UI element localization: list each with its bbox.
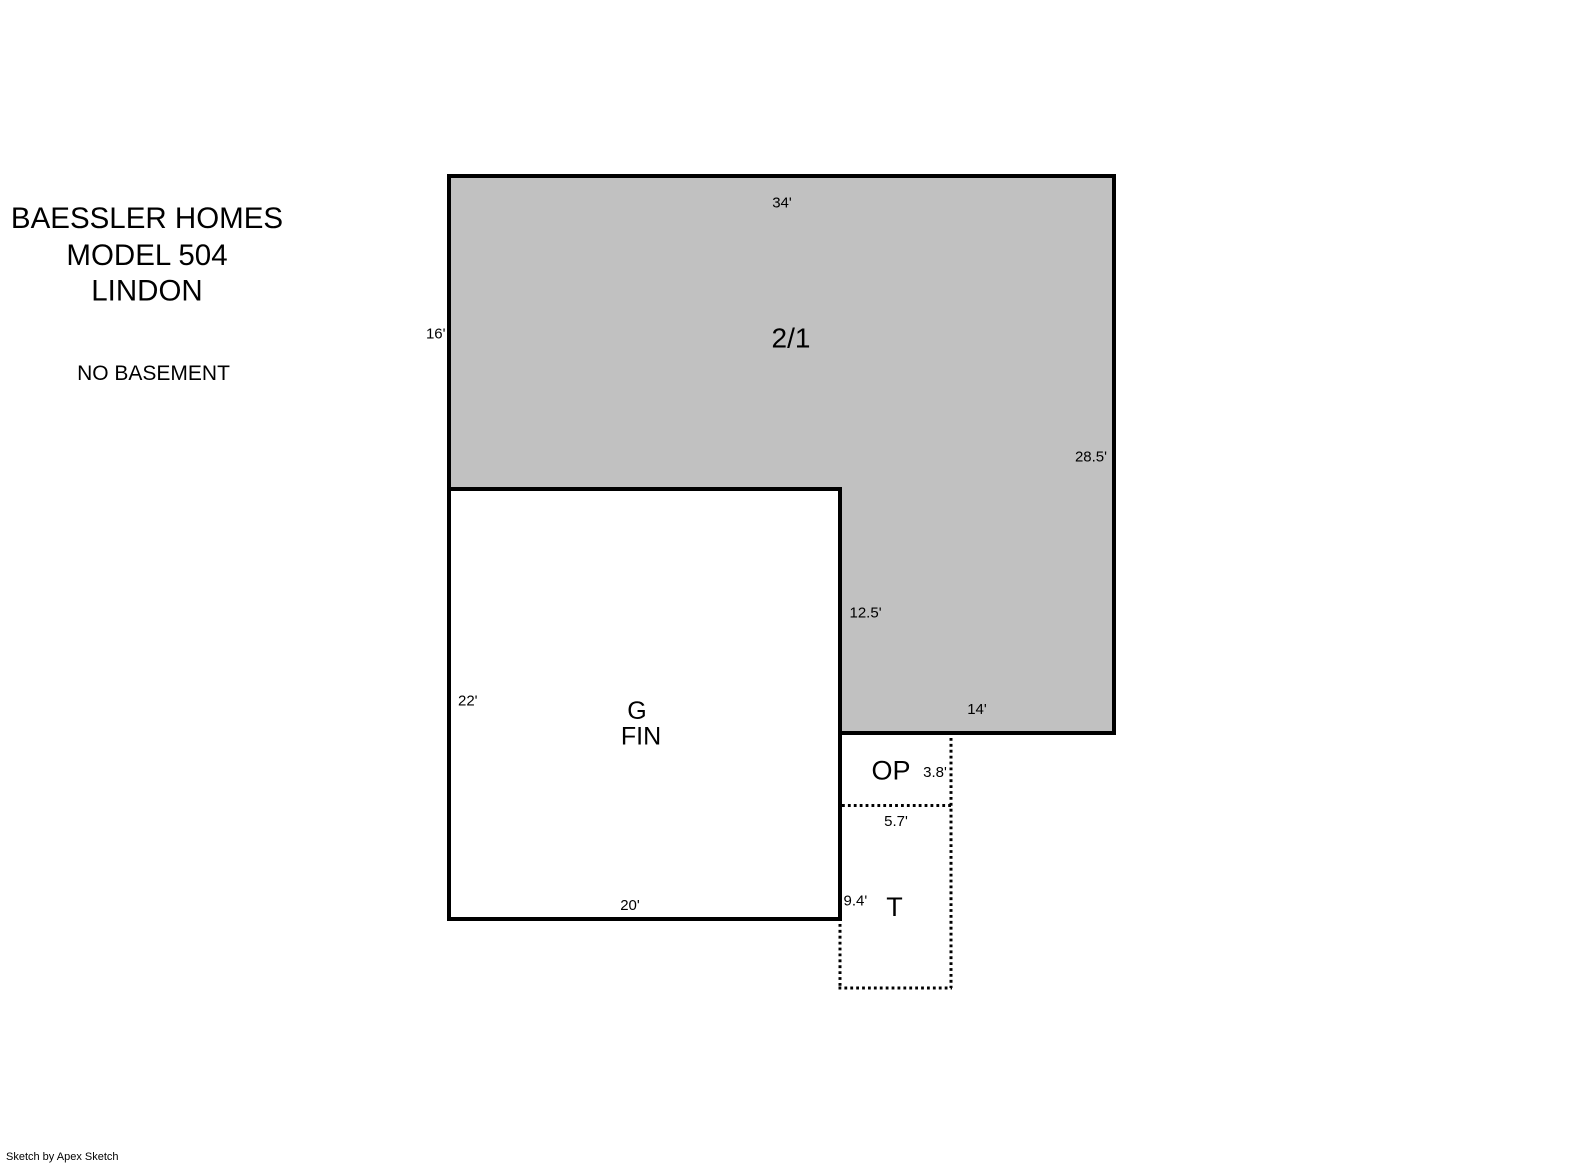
svg-text:G: G [627,697,646,725]
svg-text:20': 20' [620,897,640,914]
svg-text:14': 14' [967,701,987,718]
svg-text:T: T [886,892,903,922]
svg-text:FIN: FIN [621,723,661,751]
svg-text:BAESSLER HOMES: BAESSLER HOMES [11,202,283,235]
svg-text:NO BASEMENT: NO BASEMENT [77,362,230,385]
svg-text:28.5': 28.5' [1075,449,1107,466]
svg-text:9.4': 9.4' [844,893,868,910]
svg-text:3.8': 3.8' [923,764,947,781]
svg-text:LINDON: LINDON [91,275,202,308]
svg-text:22': 22' [458,693,478,710]
svg-text:12.5': 12.5' [850,605,882,622]
svg-text:5.7': 5.7' [884,813,908,830]
svg-text:16': 16' [426,326,446,343]
svg-text:MODEL 504: MODEL 504 [66,239,227,272]
svg-text:Sketch by Apex Sketch: Sketch by Apex Sketch [6,1151,119,1163]
svg-text:34': 34' [772,195,792,212]
svg-text:2/1: 2/1 [772,323,811,354]
svg-text:OP: OP [871,756,910,786]
